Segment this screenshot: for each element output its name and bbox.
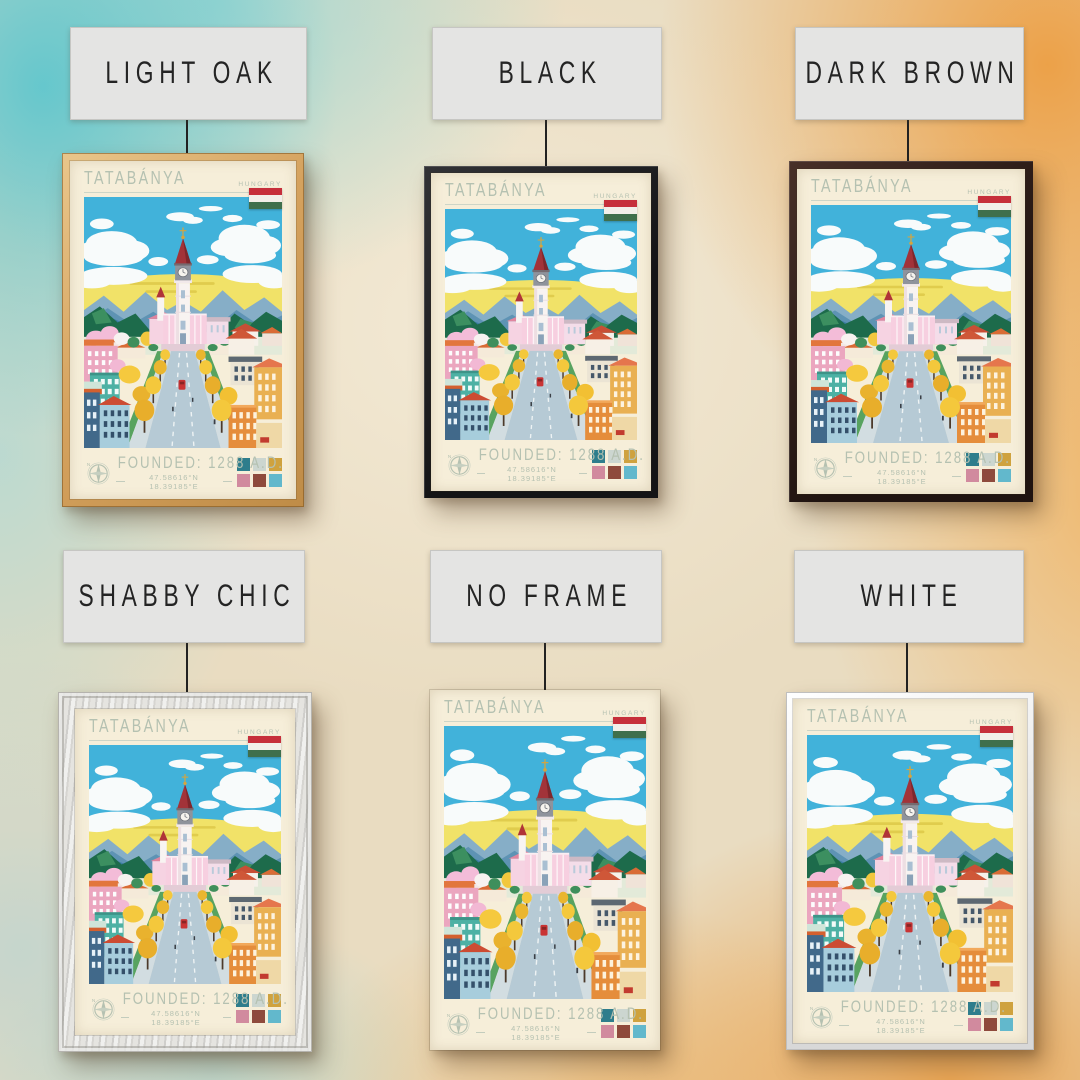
coord-dash-left [839, 1025, 849, 1026]
coordinates-row: 47.58616°N 18.39185°E [476, 1024, 596, 1042]
variant-card-black: BLACK [432, 27, 662, 120]
variant-card-white: WHITE [794, 550, 1024, 643]
palette-swatch-rust [617, 1025, 630, 1038]
coord-dash-left [116, 481, 125, 482]
poster-header: TATABÁNYA HUNGARY [444, 701, 646, 718]
svg-text:N: N [810, 1005, 814, 1011]
coordinates-row: 47.58616°N 18.39185°E [116, 473, 232, 491]
flag-stripe-white [249, 195, 282, 202]
palette-swatch-rust [984, 1018, 997, 1031]
variant-label: SHABBY CHIC [73, 578, 296, 614]
variant-label: BLACK [493, 55, 602, 91]
coordinates-text: 47.58616°N 18.39185°E [856, 468, 948, 486]
poster-header: TATABÁNYA HUNGARY [89, 720, 281, 737]
hungary-flag [613, 717, 646, 738]
poster-title: TATABÁNYA [811, 176, 913, 197]
compass-icon: N [808, 1003, 835, 1030]
poster-artwork-area [811, 205, 1011, 443]
flag-stripe-white [980, 733, 1013, 740]
palette-swatch-rust [608, 466, 621, 479]
hanger-line [545, 119, 547, 167]
coord-dash-right [954, 1025, 964, 1026]
palette-swatch-blue [998, 469, 1011, 482]
travel-poster: TATABÁNYA HUNGARY [797, 169, 1025, 494]
hanger-line [544, 642, 546, 691]
palette-swatch-rust [982, 469, 995, 482]
hanger-line [186, 119, 188, 154]
svg-text:N: N [92, 997, 96, 1003]
travel-poster: TATABÁNYA HUNGARY [431, 173, 651, 491]
coord-dash-right [587, 1032, 596, 1033]
founded-block: FOUNDED: 1288 A.D. 47.58616°N 18.39185°E [843, 449, 961, 486]
framed-poster-light-oak: TATABÁNYA HUNGARY [62, 153, 304, 507]
founded-text: FOUNDED: 1288 A.D. [118, 453, 284, 471]
svg-text:N: N [814, 456, 818, 462]
framed-poster-black: TATABÁNYA HUNGARY [424, 166, 658, 498]
poster-artwork-area [444, 726, 646, 999]
compass-icon: N [812, 454, 839, 481]
palette-swatch-pink [601, 1025, 614, 1038]
unframed-poster: TATABÁNYA HUNGARY [430, 690, 660, 1050]
hungary-flag [978, 196, 1011, 217]
palette-swatch-blue [633, 1025, 646, 1038]
cityscape-artwork [445, 209, 637, 440]
coordinates-text: 47.58616°N 18.39185°E [133, 1009, 218, 1027]
hanger-line [907, 119, 909, 162]
coord-dash-left [476, 1032, 485, 1033]
flag-stripe-white [613, 724, 646, 731]
flag-stripe-red [613, 717, 646, 724]
flag-stripe-green [978, 210, 1011, 217]
flag-stripe-red [978, 196, 1011, 203]
poster-title: TATABÁNYA [84, 168, 186, 189]
compass-icon: N [85, 459, 112, 486]
poster-header: TATABÁNYA HUNGARY [445, 184, 637, 201]
palette-swatch-pink [236, 1010, 249, 1023]
variant-label: NO FRAME [460, 578, 632, 614]
flag-stripe-green [249, 202, 282, 209]
coord-dash-left [477, 473, 485, 474]
travel-poster: TATABÁNYA HUNGARY [70, 161, 296, 499]
coordinates-text: 47.58616°N 18.39185°E [489, 1024, 583, 1042]
flag-stripe-white [978, 203, 1011, 210]
poster-artwork-area [807, 735, 1013, 992]
variant-card-no-frame: NO FRAME [430, 550, 662, 643]
hungary-flag [249, 188, 282, 209]
founded-block: FOUNDED: 1288 A.D. 47.58616°N 18.39185°E [116, 454, 232, 491]
founded-block: FOUNDED: 1288 A.D. 47.58616°N 18.39185°E [839, 998, 963, 1035]
coordinates-text: 47.58616°N 18.39185°E [853, 1017, 950, 1035]
cityscape-artwork [89, 745, 281, 984]
variant-label: WHITE [855, 578, 963, 614]
founded-text: FOUNDED: 1288 A.D. [841, 997, 1007, 1015]
coord-dash-left [121, 1017, 129, 1018]
cityscape-artwork [84, 197, 282, 448]
palette-swatch-pink [966, 469, 979, 482]
variant-label: DARK BROWN [800, 55, 1020, 91]
product-mockup-wall: { "variants": [ {"label": "LIGHT OAK", "… [0, 0, 1080, 1080]
cityscape-artwork [807, 735, 1013, 992]
coord-dash-right [952, 476, 961, 477]
palette-swatch-pink [592, 466, 605, 479]
svg-text:N: N [447, 1012, 451, 1018]
coordinates-row: 47.58616°N 18.39185°E [477, 465, 587, 483]
poster-footer: N FOUNDED: 1288 A.D. 47.58616°N 18.39185… [807, 996, 1013, 1036]
palette-swatch-blue [269, 474, 282, 487]
poster-footer: N FOUNDED: 1288 A.D. 47.58616°N 18.39185… [444, 1003, 646, 1043]
flag-stripe-green [248, 750, 281, 757]
variant-card-light-oak: LIGHT OAK [70, 27, 307, 120]
coord-dash-right [223, 481, 232, 482]
flag-stripe-red [604, 200, 637, 207]
coord-dash-right [579, 473, 587, 474]
palette-swatch-blue [268, 1010, 281, 1023]
framed-poster-white: TATABÁNYA HUNGARY [786, 692, 1034, 1050]
palette-swatch-pink [968, 1018, 981, 1031]
founded-block: FOUNDED: 1288 A.D. 47.58616°N 18.39185°E [121, 990, 231, 1027]
flag-stripe-white [604, 207, 637, 214]
flag-stripe-green [604, 214, 637, 221]
poster-header: TATABÁNYA HUNGARY [811, 180, 1011, 197]
poster-footer: N FOUNDED: 1288 A.D. 47.58616°N 18.39185… [89, 988, 281, 1028]
founded-text: FOUNDED: 1288 A.D. [479, 445, 645, 463]
poster-artwork-area [89, 745, 281, 984]
palette-swatch-blue [624, 466, 637, 479]
hungary-flag [248, 736, 281, 757]
founded-text: FOUNDED: 1288 A.D. [478, 1004, 644, 1022]
poster-footer: N FOUNDED: 1288 A.D. 47.58616°N 18.39185… [811, 447, 1011, 487]
svg-text:N: N [448, 453, 452, 459]
hanger-line [186, 642, 188, 693]
poster-title: TATABÁNYA [89, 716, 191, 737]
hanger-line [906, 642, 908, 693]
variant-card-shabby-chic: SHABBY CHIC [63, 550, 305, 643]
coord-dash-right [223, 1017, 231, 1018]
poster-footer: N FOUNDED: 1288 A.D. 47.58616°N 18.39185… [84, 452, 282, 492]
travel-poster: TATABÁNYA HUNGARY [75, 709, 295, 1035]
coordinates-row: 47.58616°N 18.39185°E [843, 468, 961, 486]
palette-swatch-rust [252, 1010, 265, 1023]
palette-swatch-blue [1000, 1018, 1013, 1031]
poster-title: TATABÁNYA [807, 706, 909, 727]
poster-artwork-area [445, 209, 637, 440]
flag-stripe-red [980, 726, 1013, 733]
svg-text:N: N [87, 461, 91, 467]
poster-header: TATABÁNYA HUNGARY [84, 172, 282, 189]
framed-poster-dark-brown: TATABÁNYA HUNGARY [789, 161, 1033, 502]
poster-title: TATABÁNYA [445, 180, 547, 201]
framed-poster-shabby-chic: TATABÁNYA HUNGARY [58, 692, 312, 1052]
travel-poster: TATABÁNYA HUNGARY [430, 690, 660, 1050]
coordinates-text: 47.58616°N 18.39185°E [129, 473, 219, 491]
variant-card-dark-brown: DARK BROWN [795, 27, 1024, 120]
cityscape-artwork [811, 205, 1011, 443]
flag-stripe-white [248, 743, 281, 750]
compass-icon: N [445, 1010, 472, 1037]
flag-stripe-red [248, 736, 281, 743]
flag-stripe-red [249, 188, 282, 195]
coordinates-row: 47.58616°N 18.39185°E [121, 1009, 231, 1027]
founded-block: FOUNDED: 1288 A.D. 47.58616°N 18.39185°E [477, 446, 587, 483]
hungary-flag [980, 726, 1013, 747]
poster-artwork-area [84, 197, 282, 448]
poster-footer: N FOUNDED: 1288 A.D. 47.58616°N 18.39185… [445, 444, 637, 484]
founded-block: FOUNDED: 1288 A.D. 47.58616°N 18.39185°E [476, 1005, 596, 1042]
compass-icon: N [446, 451, 473, 478]
variant-label: LIGHT OAK [99, 55, 277, 91]
palette-swatch-rust [253, 474, 266, 487]
palette-swatch-pink [237, 474, 250, 487]
hungary-flag [604, 200, 637, 221]
coord-dash-left [843, 476, 852, 477]
coordinates-row: 47.58616°N 18.39185°E [839, 1017, 963, 1035]
flag-stripe-green [613, 731, 646, 738]
compass-icon: N [90, 995, 117, 1022]
poster-header: TATABÁNYA HUNGARY [807, 710, 1013, 727]
flag-stripe-green [980, 740, 1013, 747]
coordinates-text: 47.58616°N 18.39185°E [489, 465, 574, 483]
cityscape-artwork [444, 726, 646, 999]
founded-text: FOUNDED: 1288 A.D. [845, 448, 1011, 466]
poster-title: TATABÁNYA [444, 697, 546, 718]
founded-text: FOUNDED: 1288 A.D. [123, 989, 289, 1007]
travel-poster: TATABÁNYA HUNGARY [793, 699, 1027, 1043]
